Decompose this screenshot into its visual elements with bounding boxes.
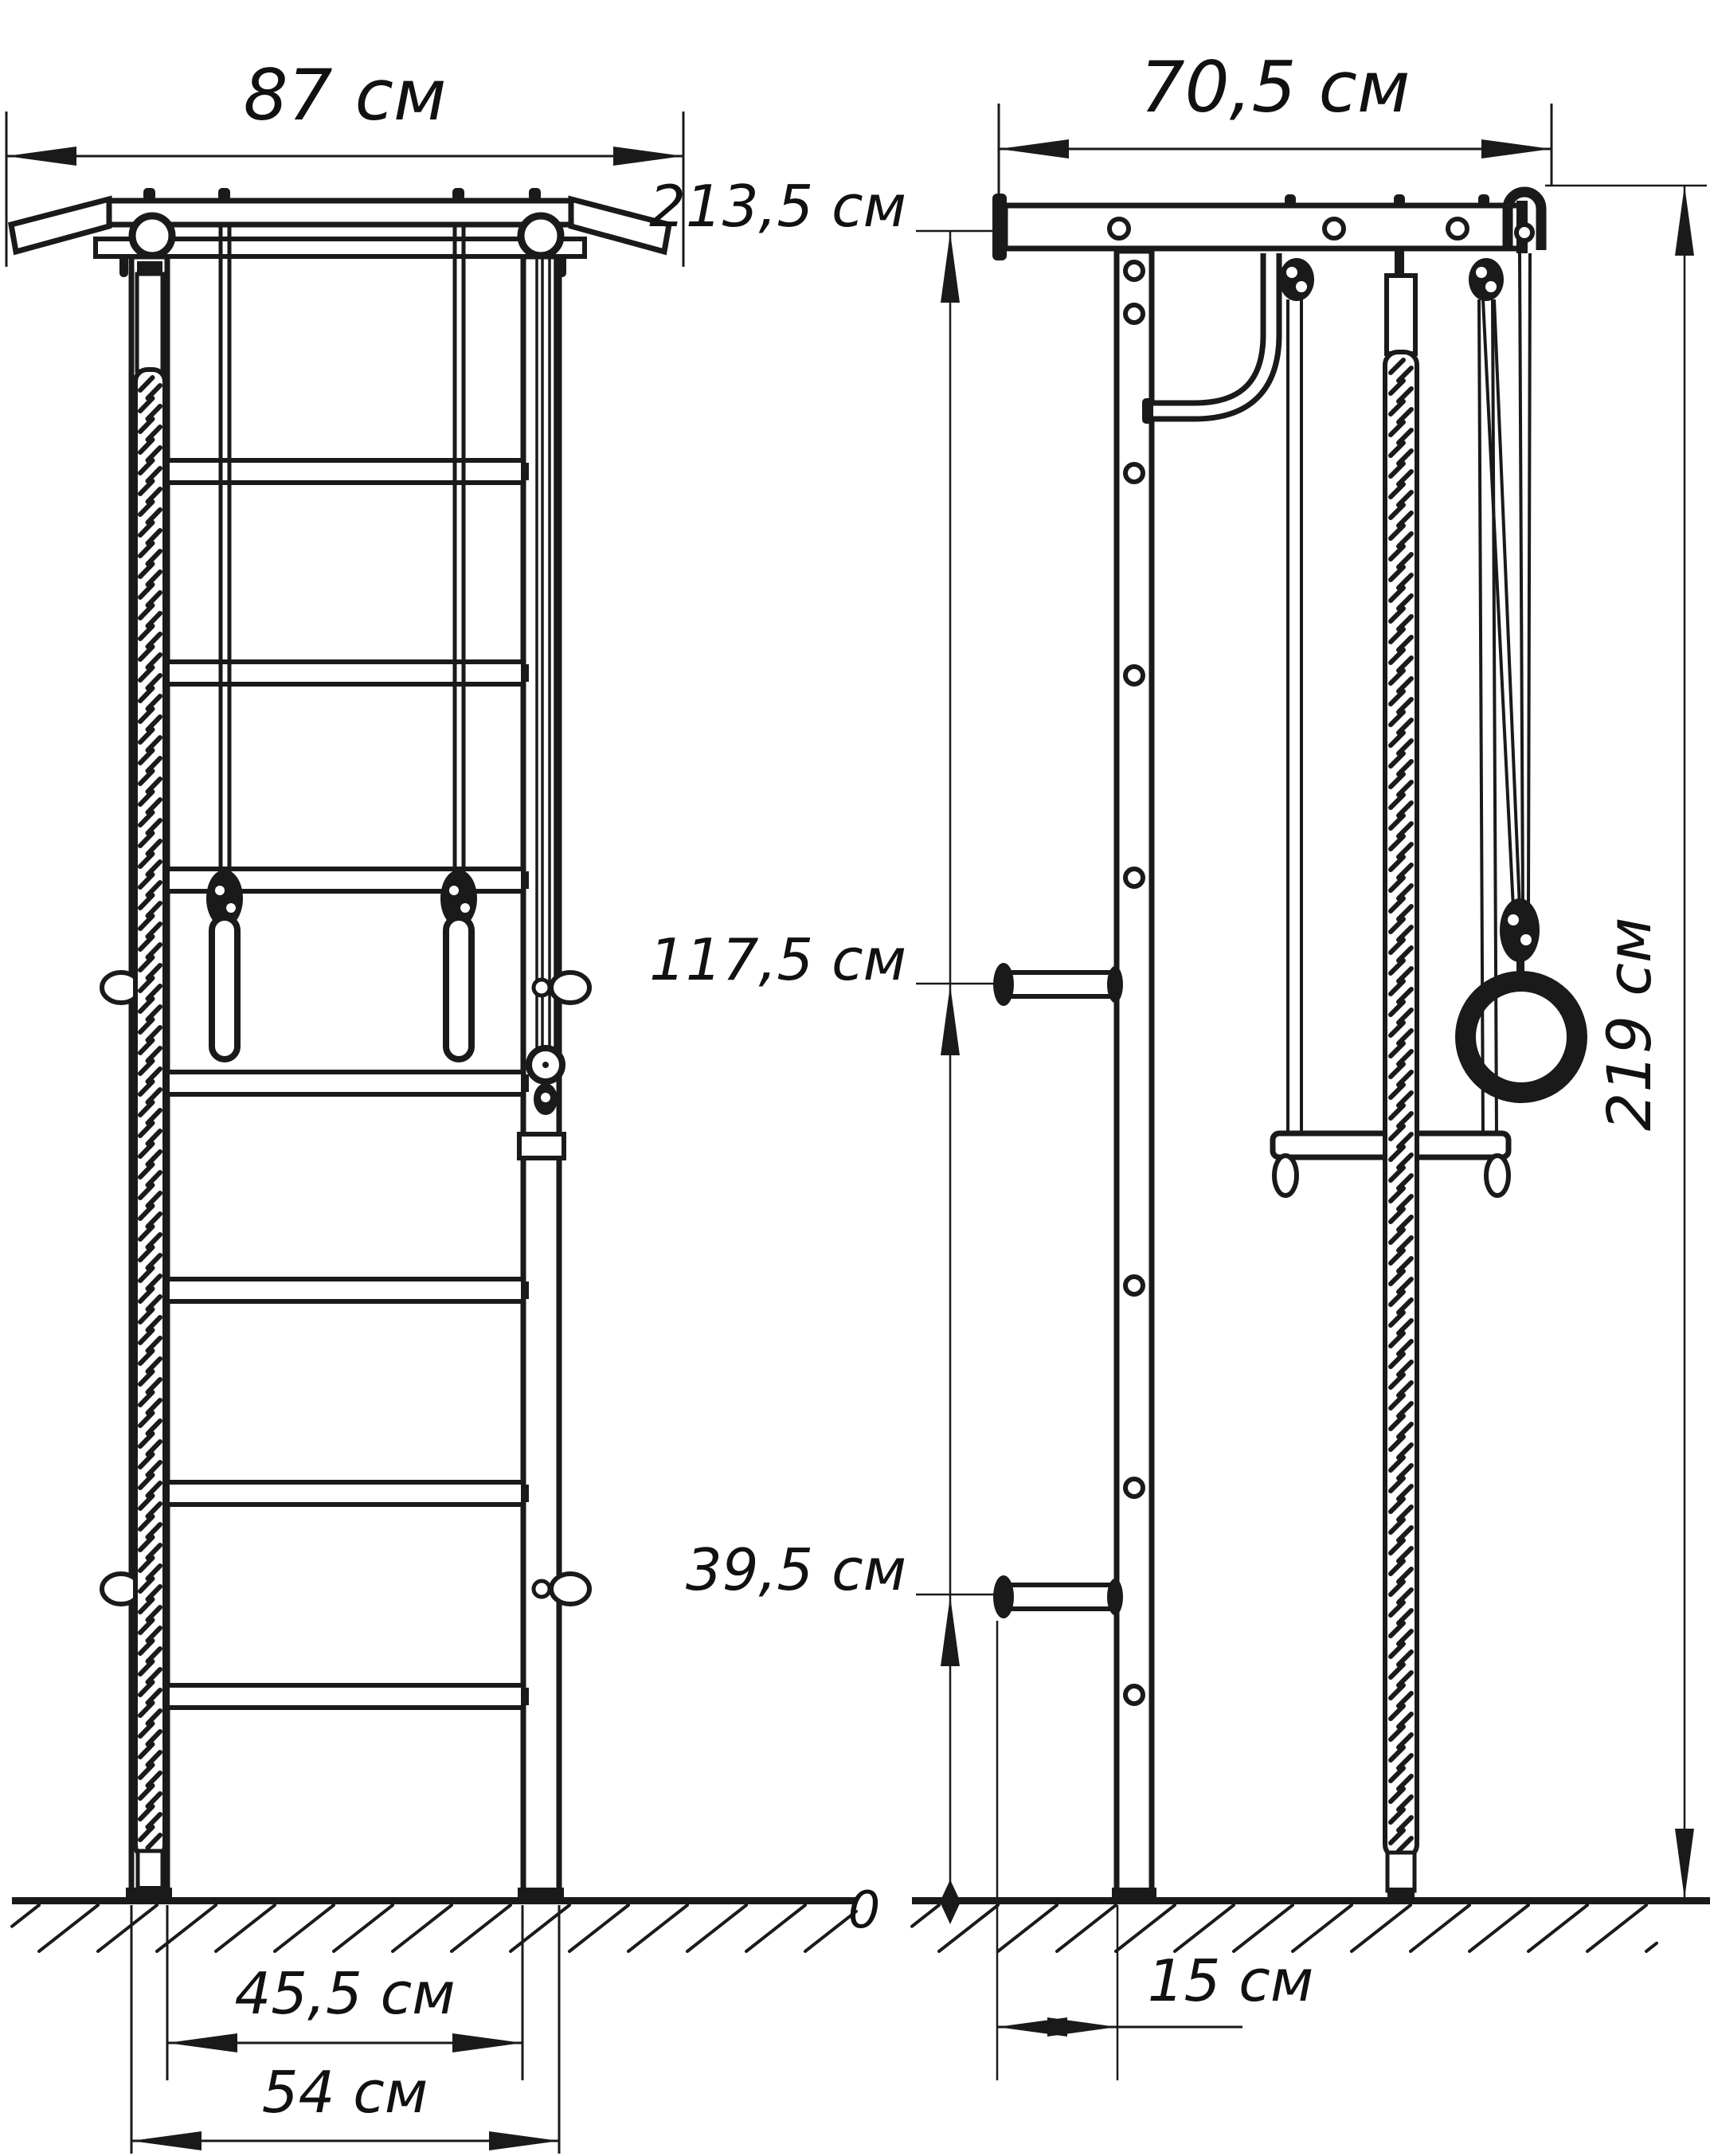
anchor-bolt [534, 1581, 550, 1597]
side-post [1117, 251, 1152, 1899]
dim-label-45-5: 45,5 см [234, 1960, 455, 2027]
wall-anchor-eyelet [551, 1574, 589, 1604]
beam-hole [1448, 219, 1467, 238]
dim-label-15: 15 см [1148, 1947, 1313, 2014]
ground-line-side [912, 1897, 1710, 1904]
gymnastic-ring-front [212, 918, 237, 1059]
arrowhead [1675, 186, 1694, 256]
rung [162, 1279, 529, 1301]
rope-hanger-knob [218, 188, 230, 201]
beam-hanger-knob [1394, 194, 1405, 205]
ground-hatch-front [12, 1905, 856, 1951]
dim-label-87: 87 см [244, 54, 447, 136]
arrowhead-up [941, 1596, 960, 1666]
ring-ropes-front [206, 225, 477, 1059]
dim-label-219: 219 см [1594, 918, 1665, 1131]
dim-front-width-inner: 45,5 см [167, 1905, 522, 2080]
rope-knot [1469, 258, 1504, 301]
rung [162, 460, 529, 483]
arrowhead [1481, 139, 1552, 158]
beam-hanger-knob [1478, 194, 1489, 205]
arrowhead-up [941, 985, 960, 1055]
dim-label-54: 54 см [262, 2059, 428, 2126]
side-view: 70,5 см 213,5 см 117,5 см 39,5 см 0 219 … [649, 46, 1707, 2080]
rope-top-sleeve [137, 274, 162, 371]
side-post-foot [1112, 1888, 1156, 1900]
shackle-bolt [1516, 225, 1532, 241]
low-wall-bracket [993, 1575, 1123, 1618]
rung [162, 1072, 529, 1094]
dim-label-213-5: 213,5 см [649, 173, 906, 240]
arrowhead [1675, 1829, 1694, 1899]
trapeze-rope-loop [1486, 1156, 1508, 1195]
arrowhead [613, 147, 683, 166]
arrowhead-up [941, 233, 960, 303]
dim-front-width-top: 87 см [6, 54, 683, 267]
dim-label-117-5: 117,5 см [649, 926, 906, 993]
rung [162, 1482, 529, 1505]
handle-mount [1142, 398, 1153, 424]
dim-label-zero: 0 [848, 1881, 881, 1940]
arrowhead [131, 2131, 202, 2150]
pullup-handle-side [1142, 253, 1271, 424]
arrowhead [999, 139, 1069, 158]
rope-knot [1500, 898, 1540, 962]
climbing-rope-side [1385, 248, 1417, 1899]
arrowhead [1047, 2017, 1117, 2037]
rope-bottom-sleeve [138, 1851, 162, 1889]
ground-hatch-side [912, 1905, 1657, 1951]
dim-label-70-5: 70,5 см [1141, 46, 1411, 128]
gymnastic-ring-front [446, 918, 472, 1059]
dim-datum-heights: 213,5 см 117,5 см 39,5 см 0 [649, 173, 997, 1940]
right-pulley-hook [558, 255, 566, 277]
left-pulley-hook [119, 255, 128, 277]
trapeze-rope-loop [1274, 1156, 1297, 1195]
left-corner-pulley [132, 216, 172, 256]
arrowhead [489, 2131, 559, 2150]
front-right-foot [518, 1888, 564, 1900]
rung [162, 1685, 529, 1708]
beam-hole [1109, 219, 1129, 238]
front-view: 87 см 45,5 см 54 см [6, 54, 683, 2154]
wall-bars-drawing: 87 см 45,5 см 54 см [0, 0, 1710, 2156]
beam-hanger-knob [1285, 194, 1296, 205]
top-bar-knob [529, 188, 541, 201]
wall-anchor-eyelet [551, 972, 589, 1003]
cable-bracket [519, 1134, 564, 1158]
dim-label-39-5: 39,5 см [686, 1536, 906, 1603]
rungs [162, 460, 529, 1708]
rope-bottom-sleeve [1387, 1853, 1415, 1891]
rope-knot [1279, 258, 1314, 301]
dim-side-wall-offset: 15 см [997, 1621, 1313, 2080]
rope-hanger-knob [452, 188, 464, 201]
rung [162, 662, 529, 684]
beam-hole [1325, 219, 1344, 238]
arrowhead [167, 2033, 237, 2052]
rope-top-sleeve [1387, 276, 1415, 354]
top-bar-middle [109, 201, 571, 225]
datum-tick [940, 1880, 961, 1924]
arrowhead [6, 147, 76, 166]
top-bar-assembly [11, 188, 669, 277]
climbing-rope-front [135, 261, 165, 1898]
mid-wall-bracket [993, 963, 1123, 1006]
top-bar-knob [143, 188, 155, 201]
right-corner-pulley [521, 216, 561, 256]
dim-side-depth-top: 70,5 см [999, 46, 1552, 199]
arrowhead [452, 2033, 522, 2052]
anchor-bolt [534, 980, 550, 996]
